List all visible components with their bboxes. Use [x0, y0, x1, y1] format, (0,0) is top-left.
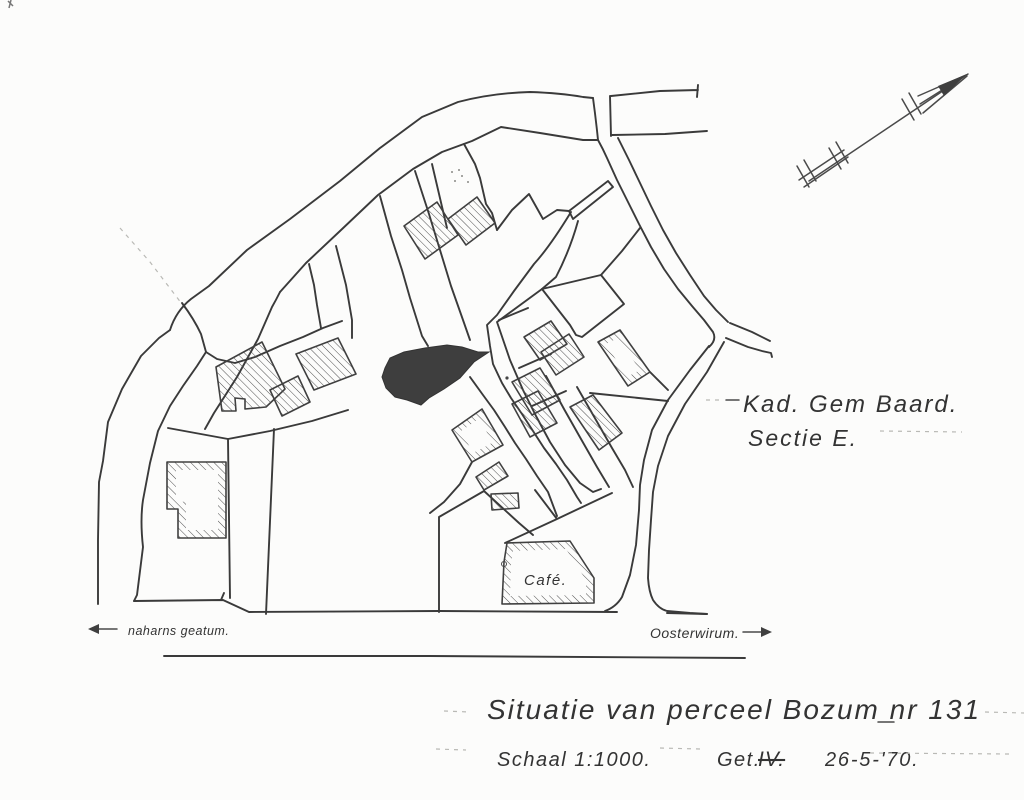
svg-text:Café.: Café.: [524, 572, 567, 589]
svg-text:Sectie E.: Sectie E.: [748, 425, 858, 451]
svg-text:Schaal 1:1000.: Schaal 1:1000.: [497, 749, 651, 771]
svg-text:Get.: Get.: [717, 749, 761, 771]
svg-text:naharns geatum.: naharns geatum.: [128, 624, 229, 638]
svg-text:IV.: IV.: [758, 748, 785, 771]
svg-text:Situatie van perceel Bozum nr: Situatie van perceel Bozum nr 131: [487, 694, 981, 725]
svg-text:Kad. Gem Baard.: Kad. Gem Baard.: [743, 391, 958, 418]
svg-text:26-5-'70.: 26-5-'70.: [824, 749, 920, 771]
svg-text:Oosterwirum.: Oosterwirum.: [650, 625, 739, 641]
